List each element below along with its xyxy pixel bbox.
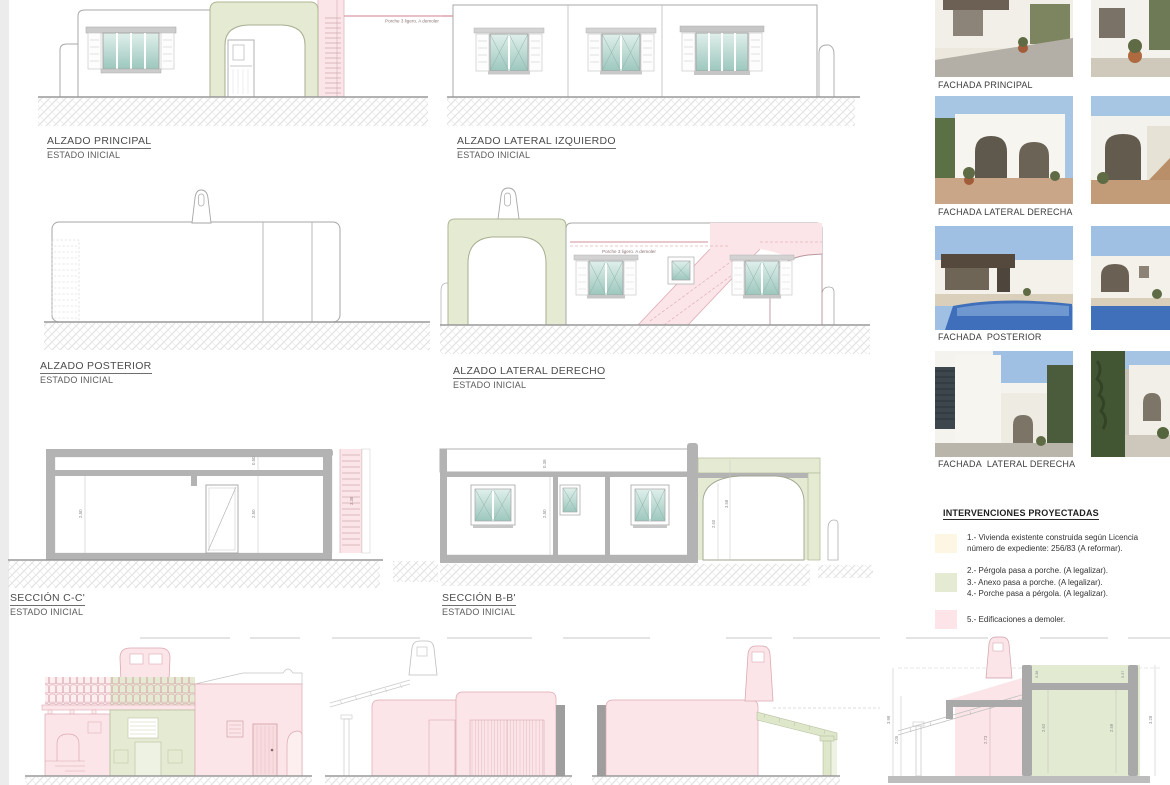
low-wall — [60, 44, 78, 97]
photo-caption: FACHADA LATERAL DERECHA — [938, 459, 1075, 469]
window-a — [574, 255, 638, 299]
svg-text:2.62: 2.62 — [1041, 723, 1046, 732]
svg-text:0.37: 0.37 — [1121, 671, 1125, 678]
ground — [440, 325, 870, 354]
panel-subtitle: ESTADO INICIAL — [10, 607, 85, 617]
alzado-lateral-derecho-drawing: Porche 3 ligero. A demoler — [440, 183, 872, 377]
label-seccion-cc: SECCIÓN C-C' ESTADO INICIAL — [10, 588, 85, 617]
photo-fachada-lateral-derecha-1 — [935, 96, 1073, 204]
panel-title: SECCIÓN B-B' — [442, 592, 516, 606]
label-seccion-bb: SECCIÓN B-B' ESTADO INICIAL — [442, 588, 516, 617]
svg-text:2.05: 2.05 — [894, 735, 899, 744]
svg-text:3.98: 3.98 — [886, 715, 891, 724]
right-quarter-wall — [822, 287, 834, 325]
photo-caption: FACHADA POSTERIOR — [938, 332, 1042, 342]
floor-slab — [46, 553, 332, 560]
window-c — [730, 255, 794, 299]
seccion-cc-drawing: 2.50 2.50 0.50 3.38 — [8, 443, 438, 591]
drawing-reformado-1 — [25, 648, 312, 785]
rear-wall — [52, 222, 340, 322]
window-principal — [86, 27, 176, 73]
legend-item-vivienda-existente: 1.- Vivienda existente construida según … — [935, 532, 1170, 554]
svg-text:2.73: 2.73 — [983, 735, 988, 744]
right-round-wall — [828, 520, 838, 560]
stair-strip-pink — [340, 449, 370, 553]
legend-line: 2.- Pérgola pasa a porche. (A legalizar)… — [967, 565, 1108, 576]
window-2 — [586, 28, 656, 75]
floor-slab — [440, 555, 698, 563]
panel-title: ALZADO PRINCIPAL — [47, 135, 151, 149]
ground — [8, 560, 438, 588]
panel-subtitle: ESTADO INICIAL — [442, 607, 516, 617]
demolition-stair-strip: Porche 3 ligero. A demoler — [318, 0, 458, 97]
porch-arch-green — [210, 2, 318, 97]
photo-fachada-principal-2 — [1091, 0, 1170, 77]
legend-heading: INTERVENCIONES PROYECTADAS — [943, 508, 1099, 520]
legend-swatch-existente — [935, 534, 957, 553]
drawing-reformado-2 — [325, 641, 572, 785]
alzado-lateral-izquierdo-drawing — [443, 0, 863, 130]
svg-text:0.50: 0.50 — [251, 456, 256, 465]
plan-sheet: Porche 3 ligero. A demoler — [0, 0, 1170, 785]
photo-fachada-lateral-derecha-4 — [1091, 351, 1170, 457]
svg-text:2.60: 2.60 — [711, 519, 716, 528]
svg-text:3.58: 3.58 — [724, 499, 729, 508]
bottom-drawings: 2.62 2.59 0.38 0.37 2.73 2.05 3.98 3.28 — [0, 628, 1170, 785]
label-alzado-principal: ALZADO PRINCIPAL ESTADO INICIAL — [47, 131, 151, 160]
porch-green — [698, 458, 820, 560]
legend-line: 4.- Porche pasa a pérgola. (A legalizar)… — [967, 588, 1108, 599]
label-alzado-posterior: ALZADO POSTERIOR ESTADO INICIAL — [40, 356, 152, 385]
ceiling-slab — [55, 470, 323, 476]
demolish-annotation: Porche 3 ligero. A demoler — [602, 249, 656, 254]
panel-subtitle: ESTADO INICIAL — [457, 150, 616, 160]
legend-item-legalizar: 2.- Pérgola pasa a porche. (A legalizar)… — [935, 565, 1170, 599]
svg-text:3.28: 3.28 — [1148, 715, 1153, 724]
legend-swatch-demoler — [935, 610, 957, 629]
window-small — [668, 257, 694, 284]
legend-item-demoler: 5.- Edificaciones a demoler. — [935, 610, 1170, 629]
left-wall — [440, 449, 447, 561]
panel-title: ALZADO POSTERIOR — [40, 360, 152, 374]
right-wall — [323, 449, 332, 560]
legend-swatch-legalizar — [935, 573, 957, 592]
door-section — [206, 485, 238, 553]
photo-fachada-principal-1 — [935, 0, 1073, 77]
legend-line: 3.- Anexo pasa a porche. (A legalizar). — [967, 577, 1108, 588]
ground — [44, 322, 430, 350]
window-1 — [474, 28, 544, 75]
roof-slab — [46, 449, 333, 457]
alzado-posterior-drawing — [28, 182, 438, 352]
ground — [38, 97, 428, 126]
right-step-wall — [819, 45, 834, 97]
panel-subtitle: ESTADO INICIAL — [47, 150, 151, 160]
drawing-reformado-3 — [592, 646, 880, 785]
demolish-annotation: Porche 3 ligero. A demoler — [385, 19, 439, 24]
svg-text:2.50: 2.50 — [542, 509, 547, 518]
wall-stub — [191, 476, 197, 486]
legend-intervenciones: INTERVENCIONES PROYECTADAS 1.- Vivienda … — [935, 503, 1170, 629]
seccion-bb-drawing: 0.38 2.50 2.60 3.58 — [440, 428, 880, 590]
photo-fachada-posterior-1 — [935, 226, 1073, 330]
left-wall — [46, 449, 55, 560]
panel-title: ALZADO LATERAL IZQUIERDO — [457, 135, 616, 149]
photo-caption: FACHADA LATERAL DERECHA — [938, 207, 1073, 217]
svg-text:0.38: 0.38 — [1035, 671, 1039, 678]
drawing-reformado-4-section: 2.62 2.59 0.38 0.37 2.73 2.05 3.98 3.28 — [886, 637, 1160, 783]
svg-text:2.50: 2.50 — [78, 509, 83, 518]
porch-arch-green — [448, 219, 566, 325]
window-1 — [471, 485, 515, 528]
svg-text:2.59: 2.59 — [1109, 723, 1114, 732]
label-alzado-lateral-izquierdo: ALZADO LATERAL IZQUIERDO ESTADO INICIAL — [457, 131, 616, 160]
legend-line: número de expediente: 256/83 (A reformar… — [967, 543, 1138, 554]
legend-line: 5.- Edificaciones a demoler. — [967, 614, 1065, 625]
window-3 — [631, 485, 669, 528]
svg-text:2.50: 2.50 — [251, 509, 256, 518]
legend-line: 1.- Vivienda existente construida según … — [967, 532, 1138, 543]
photo-fachada-lateral-derecha-2 — [1091, 96, 1170, 204]
svg-text:3.38: 3.38 — [349, 496, 354, 505]
roof-slab — [440, 472, 692, 477]
window-2-small — [560, 485, 580, 515]
panel-title: ALZADO LATERAL DERECHO — [453, 365, 605, 379]
photo-fachada-lateral-derecha-3 — [935, 351, 1073, 457]
ground — [447, 97, 860, 126]
panel-subtitle: ESTADO INICIAL — [40, 375, 152, 385]
panel-title: SECCIÓN C-C' — [10, 592, 85, 606]
panel-subtitle: ESTADO INICIAL — [453, 380, 605, 390]
ground — [440, 564, 873, 586]
alzado-principal-drawing: Porche 3 ligero. A demoler — [28, 0, 468, 130]
photo-fachada-posterior-2 — [1091, 226, 1170, 330]
main-wall — [687, 443, 698, 563]
svg-text:0.38: 0.38 — [542, 459, 547, 468]
label-alzado-lateral-derecho: ALZADO LATERAL DERECHO ESTADO INICIAL — [453, 361, 605, 390]
window-3-wide — [680, 26, 764, 75]
door — [228, 40, 254, 97]
parapet — [440, 449, 690, 472]
photo-caption: FACHADA PRINCIPAL — [938, 80, 1033, 90]
